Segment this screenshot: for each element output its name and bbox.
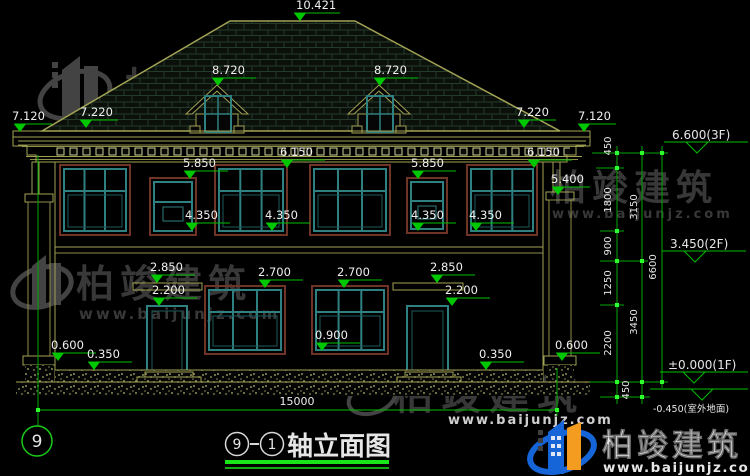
svg-text:0.600: 0.600: [555, 338, 588, 352]
svg-text:6.600(3F): 6.600(3F): [672, 128, 730, 142]
windows-second-floor: [60, 165, 537, 235]
elev-3f: 6.600(3F): [664, 128, 748, 153]
svg-text:0.350: 0.350: [479, 347, 512, 361]
dim-3450: 3450: [629, 309, 640, 334]
svg-text:3.450(2F): 3.450(2F): [670, 237, 728, 251]
label-canopy-right: 2.850: [430, 260, 475, 283]
svg-text:4.350: 4.350: [265, 208, 298, 222]
svg-text:2.850: 2.850: [150, 260, 183, 274]
svg-text:±0.000(1F): ±0.000(1F): [668, 358, 736, 372]
footer-url: www.baijunjz.com: [603, 460, 750, 476]
dentil-band: [56, 147, 570, 156]
window-2f-4: [310, 165, 390, 235]
svg-text:2.200: 2.200: [445, 283, 478, 297]
label-doortop-right: 2.200: [445, 283, 490, 306]
label-plinth-left: 0.350: [87, 347, 132, 370]
elev-outdoor: -0.450(室外地面): [650, 389, 748, 415]
drawing-title: 9 1 轴立面图: [225, 431, 391, 468]
svg-text:0.900: 0.900: [315, 328, 348, 342]
elevation-drawing: 柏竣建筑 www.baijunjz.com 柏竣建筑 www.baijunjz.…: [0, 0, 750, 476]
svg-text:-0.450(室外地面): -0.450(室外地面): [653, 403, 729, 415]
svg-text:4.350: 4.350: [185, 208, 218, 222]
label-win1top-b: 2.700: [337, 265, 382, 288]
label-eave-outer-right: 7.120: [578, 109, 616, 132]
svg-text:7.120: 7.120: [12, 109, 45, 123]
roof-hip-outline: [42, 21, 560, 131]
svg-text:6.150: 6.150: [527, 145, 560, 159]
window-2f-1: [60, 165, 130, 235]
dim-1250: 1250: [603, 270, 614, 295]
axis-bubble-9: 9: [22, 426, 52, 456]
elev-1f: ±0.000(1F): [660, 358, 748, 383]
label-plinth-right: 0.350: [479, 347, 524, 370]
title-axis-to: 1: [268, 437, 277, 453]
dim-6600: 6600: [648, 254, 659, 279]
dim-450-top: 450: [603, 136, 614, 155]
svg-text:2.200: 2.200: [152, 283, 185, 297]
svg-text:2.700: 2.700: [258, 265, 291, 279]
windows-first-floor: [205, 286, 388, 354]
svg-text:8.720: 8.720: [374, 63, 407, 77]
ground: [16, 370, 590, 396]
dim-1800: 1800: [603, 187, 614, 212]
logo-building-orange: [567, 422, 581, 470]
svg-text:6.150: 6.150: [280, 145, 313, 159]
label-basecap-right: 0.600: [555, 338, 600, 361]
title-text: 轴立面图: [287, 431, 391, 462]
dim-900: 900: [603, 236, 614, 255]
logo-building-blue: [548, 420, 564, 474]
roof: [42, 21, 560, 131]
svg-text:0.600: 0.600: [51, 338, 84, 352]
svg-text:4.350: 4.350: [411, 208, 444, 222]
footer-brand: 柏竣建筑: [602, 428, 742, 464]
svg-text:2.700: 2.700: [337, 265, 370, 279]
svg-text:5.850: 5.850: [411, 156, 444, 170]
svg-text:8.720: 8.720: [212, 63, 245, 77]
overall-width-dim: 15000: [280, 395, 315, 408]
plinth-band: [55, 370, 543, 382]
svg-text:7.120: 7.120: [578, 109, 611, 123]
svg-text:5.400: 5.400: [551, 172, 584, 186]
svg-text:0.350: 0.350: [87, 347, 120, 361]
label-win1top-a: 2.700: [258, 265, 303, 288]
svg-text:2.850: 2.850: [430, 260, 463, 274]
svg-text:5.850: 5.850: [183, 156, 216, 170]
svg-text:9: 9: [32, 432, 43, 452]
svg-text:4.350: 4.350: [469, 208, 502, 222]
footer-logo: 柏竣建筑 www.baijunjz.com: [525, 420, 750, 476]
svg-text:7.220: 7.220: [80, 105, 113, 119]
cad-elevation-canvas: 柏竣建筑 www.baijunjz.com 柏竣建筑 www.baijunjz.…: [0, 0, 750, 476]
label-win1sill: 0.900: [315, 328, 360, 351]
label-ridge: 10.421: [294, 0, 340, 21]
label-sill-c: 4.350: [411, 208, 456, 231]
svg-text:7.220: 7.220: [516, 105, 549, 119]
window-2f-5: [407, 178, 447, 233]
svg-text:10.421: 10.421: [296, 0, 336, 12]
watermark-url-dark: www.baijunjz.com: [448, 413, 613, 428]
title-axis-from: 9: [233, 437, 242, 453]
grade-strip: [16, 382, 590, 396]
dim-450-bottom: 450: [621, 380, 632, 399]
dim-2200: 2200: [603, 330, 614, 355]
title-underline: [225, 460, 389, 464]
dim-3150: 3150: [629, 194, 640, 219]
elev-2f: 3.450(2F): [662, 237, 746, 262]
svg-text:www.baijunjz.com: www.baijunjz.com: [79, 305, 280, 323]
